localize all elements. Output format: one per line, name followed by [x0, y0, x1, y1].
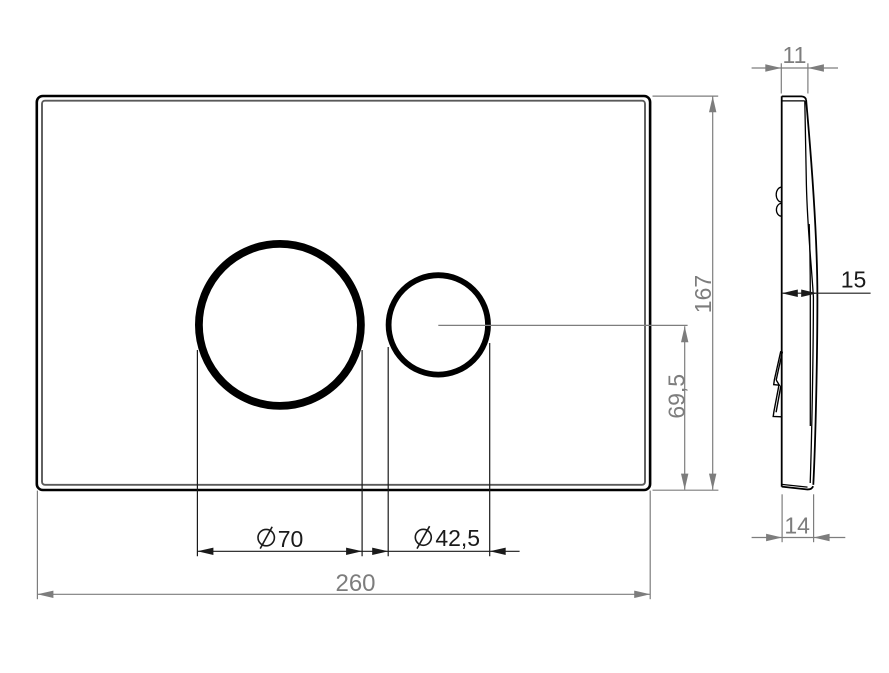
- svg-text:42,5: 42,5: [435, 525, 480, 551]
- svg-text:70: 70: [278, 526, 304, 552]
- svg-text:167: 167: [690, 275, 716, 313]
- svg-text:14: 14: [784, 512, 810, 538]
- svg-text:260: 260: [335, 570, 375, 597]
- svg-text:15: 15: [841, 267, 867, 293]
- svg-text:11: 11: [783, 42, 807, 68]
- svg-text:69,5: 69,5: [664, 374, 690, 419]
